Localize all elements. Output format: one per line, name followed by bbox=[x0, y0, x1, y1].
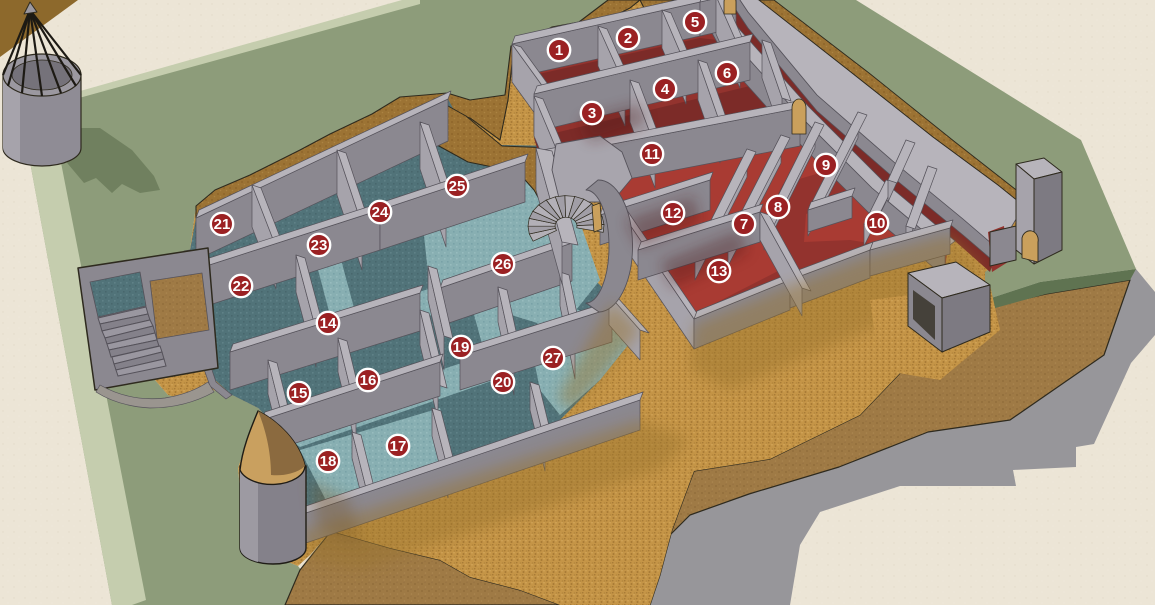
svg-text:6: 6 bbox=[723, 65, 731, 82]
svg-text:9: 9 bbox=[822, 157, 830, 174]
svg-text:22: 22 bbox=[233, 278, 250, 295]
svg-text:15: 15 bbox=[291, 385, 308, 402]
svg-text:5: 5 bbox=[691, 14, 699, 31]
svg-text:3: 3 bbox=[588, 105, 596, 122]
svg-text:18: 18 bbox=[320, 453, 337, 470]
svg-text:13: 13 bbox=[711, 263, 728, 280]
svg-text:12: 12 bbox=[665, 205, 682, 222]
svg-text:20: 20 bbox=[495, 374, 512, 391]
svg-text:23: 23 bbox=[311, 237, 328, 254]
svg-text:19: 19 bbox=[453, 339, 470, 356]
svg-text:24: 24 bbox=[372, 204, 389, 221]
svg-text:27: 27 bbox=[545, 350, 562, 367]
svg-text:1: 1 bbox=[555, 42, 563, 59]
svg-text:11: 11 bbox=[644, 146, 660, 163]
svg-text:2: 2 bbox=[624, 30, 632, 47]
svg-text:21: 21 bbox=[214, 216, 231, 233]
svg-text:8: 8 bbox=[774, 199, 782, 216]
svg-text:10: 10 bbox=[869, 215, 886, 232]
svg-text:17: 17 bbox=[390, 438, 407, 455]
svg-text:7: 7 bbox=[740, 216, 748, 233]
svg-text:16: 16 bbox=[360, 372, 377, 389]
svg-text:4: 4 bbox=[661, 81, 670, 98]
svg-text:26: 26 bbox=[495, 256, 512, 273]
svg-text:14: 14 bbox=[320, 315, 337, 332]
svg-text:25: 25 bbox=[449, 178, 466, 195]
